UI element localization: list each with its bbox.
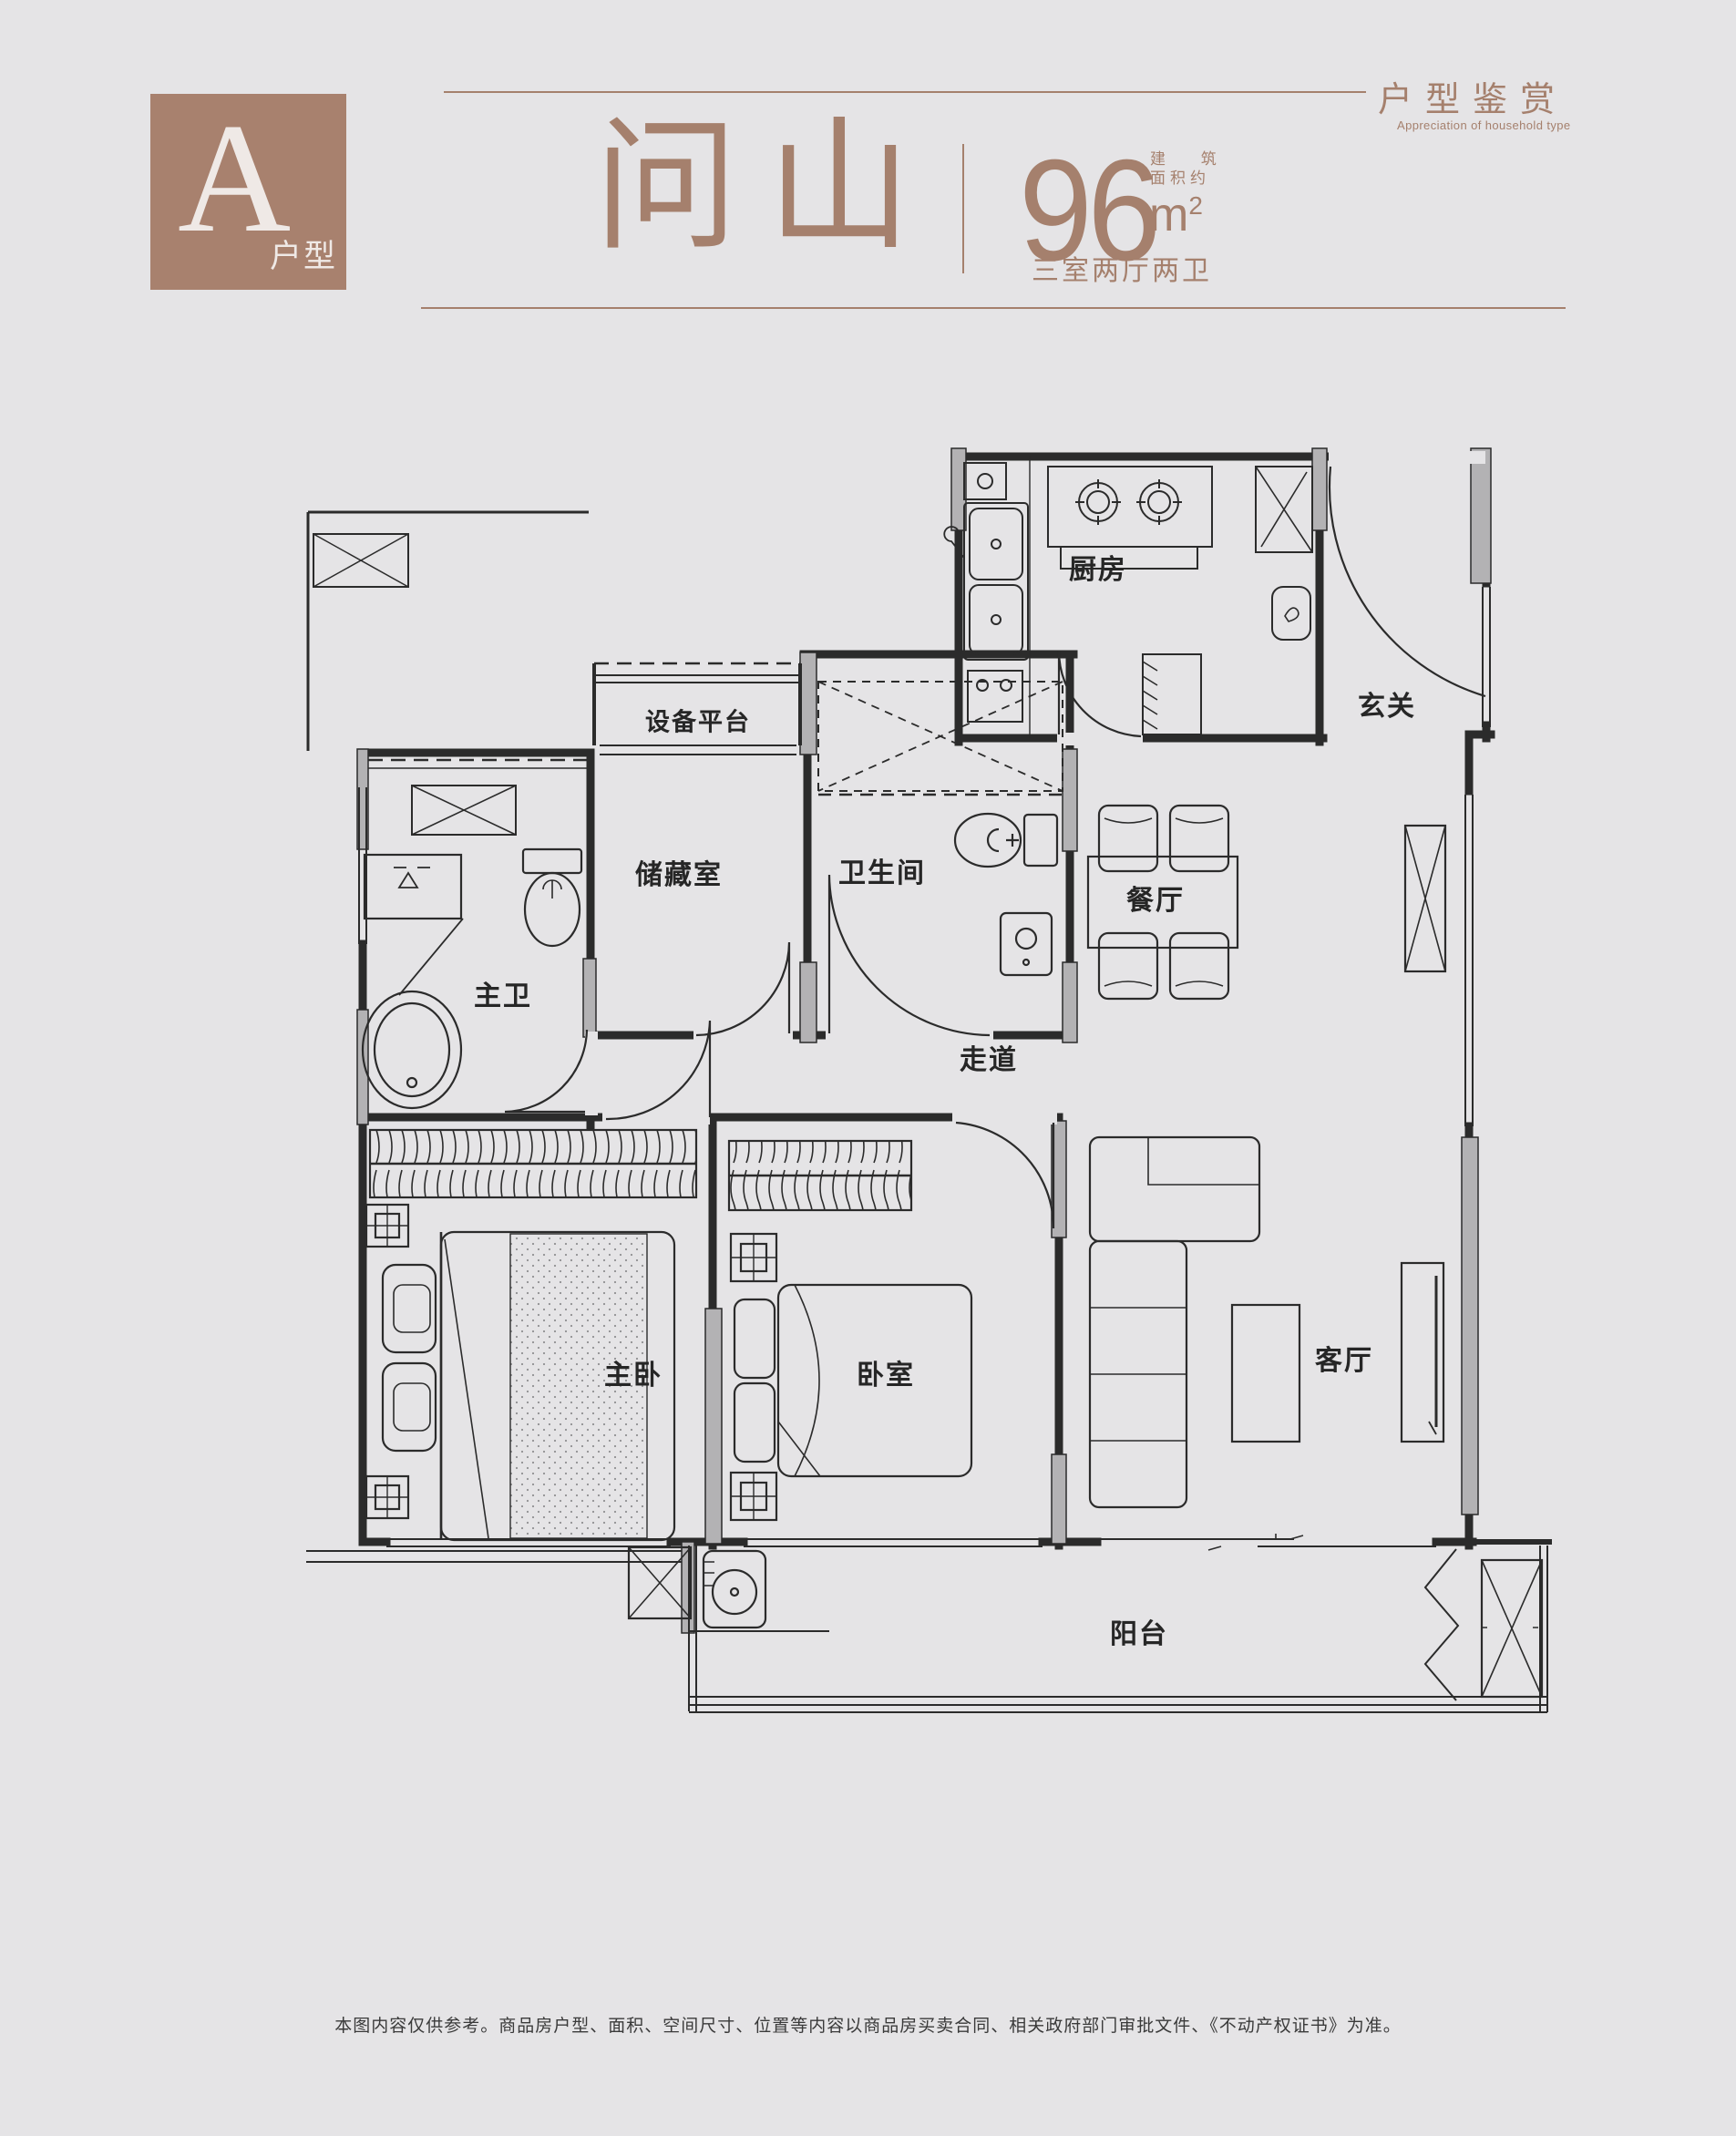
room-label-bathroom: 卫生间: [838, 850, 926, 890]
master-bedroom-furniture: [366, 1130, 696, 1540]
dining-cabinet-icon: [1405, 826, 1445, 971]
bathroom-door: [829, 875, 990, 1035]
tv-cabinet-icon: [1402, 1263, 1443, 1442]
pillow-icon: [383, 1265, 436, 1352]
bedroom-furniture: [729, 1141, 971, 1520]
room-label-equipment-platform: 设备平台: [645, 703, 751, 738]
kitchen-sink-icon: [964, 503, 1028, 660]
pillow-icon: [383, 1363, 436, 1451]
nightstand-icon: [366, 1205, 408, 1518]
toilet-icon: [955, 814, 1057, 867]
folding-door-icon: [1425, 1549, 1458, 1700]
room-label-balcony: 阳台: [1110, 1611, 1168, 1651]
wardrobe-icon: [370, 1130, 696, 1197]
sofa-icon: [1090, 1137, 1259, 1507]
page: A 户型 户型鉴赏 Appreciation of household type…: [0, 0, 1736, 2136]
washing-machine-icon: [704, 1551, 765, 1628]
room-label-living-room: 客厅: [1315, 1338, 1373, 1378]
bathtub-icon: [363, 991, 461, 1108]
pillow-icon: [734, 1299, 775, 1378]
balcony-cabinet-icon: [1482, 1560, 1542, 1697]
kitchen-fixtures: [944, 456, 1312, 738]
room-label-entry: 玄关: [1358, 683, 1416, 724]
entry-door-arc: [1330, 467, 1485, 696]
room-label-kitchen: 厨房: [1069, 547, 1127, 587]
bathroom-fixtures: [818, 682, 1063, 975]
room-label-bedroom: 卧室: [857, 1352, 915, 1392]
washbasin-icon: [1001, 913, 1052, 975]
vanity-icon: [365, 855, 461, 919]
room-label-storage: 储藏室: [635, 852, 723, 892]
master-toilet-icon: [523, 849, 581, 946]
floor-plan-drawing: [0, 0, 1736, 2136]
room-label-dining: 餐厅: [1126, 878, 1185, 918]
bedroom-door: [956, 1123, 1053, 1228]
balcony-furniture: [629, 1547, 1542, 1700]
room-label-corridor: 走道: [960, 1037, 1018, 1077]
pillow-icon: [734, 1383, 775, 1462]
wardrobe-icon: [729, 1141, 911, 1210]
master-bathroom-fixtures: [363, 786, 581, 1108]
bed-icon: [734, 1285, 971, 1476]
disclaimer-text: 本图内容仅供参考。商品房户型、面积、空间尺寸、位置等内容以商品房买卖合同、相关政…: [0, 2012, 1736, 2037]
living-room-furniture: [1090, 1137, 1443, 1507]
stove-icon: [1048, 467, 1212, 547]
master-bath-door: [505, 1030, 587, 1112]
room-label-master-bathroom: 主卫: [474, 973, 532, 1013]
room-label-master-bedroom: 主卧: [604, 1352, 663, 1392]
doors: [505, 451, 1485, 1228]
coffee-table-icon: [1232, 1305, 1299, 1442]
